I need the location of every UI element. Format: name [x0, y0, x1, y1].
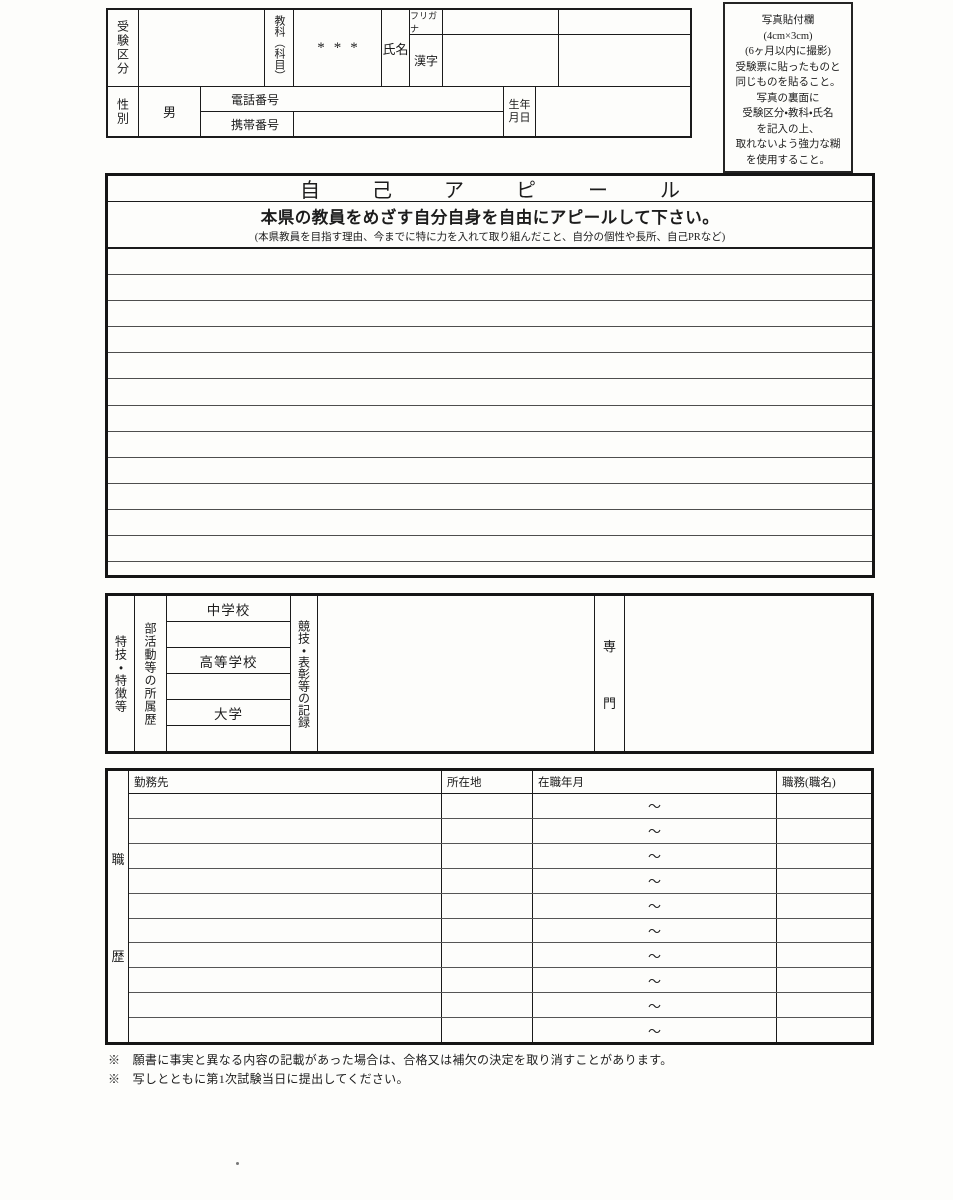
appeal-writing-line — [108, 327, 872, 353]
specialty-field — [625, 596, 871, 751]
work-history-row: ～ — [129, 992, 871, 1017]
work-history-row: ～ — [129, 843, 871, 868]
work-history-rows: ～～～～～～～～～～ — [129, 794, 871, 1042]
kanji-name-row: 漢字 — [410, 35, 690, 86]
work-cell-position — [777, 919, 871, 943]
skills-section-label: 特技・特徴等 — [108, 596, 135, 751]
photo-instruction-line: を記入の上、 — [725, 122, 851, 138]
competition-record-field — [318, 596, 595, 751]
work-history-row: ～ — [129, 1017, 871, 1042]
appeal-writing-line — [108, 249, 872, 275]
self-appeal-subtitle-block: 本県の教員をめざす自分自身を自由にアピールして下さい。 (本県教員を目指す理由、… — [108, 202, 872, 249]
specialty-label-char2: 門 — [603, 693, 616, 712]
footnote-1: ※ 願書に事実と異なる内容の記載があった場合は、合格又は補欠の決定を取り消すこと… — [108, 1051, 673, 1070]
work-history-section-label: 職 歴 — [108, 771, 129, 1042]
school-entry-field — [167, 674, 290, 700]
work-cell-employer — [129, 794, 442, 818]
work-history-label-char1: 職 — [111, 849, 124, 868]
self-appeal-subtitle: 本県の教員をめざす自分自身を自由にアピールして下さい。 — [108, 204, 872, 228]
work-cell-tenure: ～ — [533, 919, 777, 943]
photo-instruction-line: (6ヶ月以内に撮影) — [725, 44, 851, 60]
club-history-label: 部活動等の所属歴 — [135, 596, 167, 751]
kanji-name-field-left — [443, 35, 559, 86]
work-cell-location — [442, 844, 533, 868]
appeal-writing-line — [108, 379, 872, 405]
work-history-header-row: 勤務先 所在地 在職年月 職務(職名) — [129, 771, 871, 794]
work-cell-location — [442, 993, 533, 1017]
work-history-row: ～ — [129, 918, 871, 943]
appeal-writing-line — [108, 458, 872, 484]
photo-attachment-box: 写真貼付欄(4cm×3cm)(6ヶ月以内に撮影)受験票に貼ったものと同じものを貼… — [723, 2, 853, 173]
appeal-writing-line — [108, 353, 872, 379]
self-appeal-title: 自 己 ア ピ ー ル — [108, 176, 872, 202]
phone-field — [293, 87, 503, 111]
work-cell-employer — [129, 869, 442, 893]
work-cell-employer — [129, 943, 442, 967]
applicant-info-row-2: 性別 男 電話番号 携帯番号 生年 月日 — [108, 87, 690, 136]
scan-artifact-dot — [236, 1162, 239, 1165]
work-cell-position — [777, 968, 871, 992]
specialty-label: 専 門 — [595, 596, 625, 751]
column-header-tenure: 在職年月 — [533, 771, 777, 793]
appeal-writing-line — [108, 484, 872, 510]
work-cell-position — [777, 943, 871, 967]
self-appeal-section: 自 己 ア ピ ー ル 本県の教員をめざす自分自身を自由にアピールして下さい。 … — [105, 173, 875, 578]
footnote-2: ※ 写しとともに第1次試験当日に提出してください。 — [108, 1070, 673, 1089]
work-cell-tenure: ～ — [533, 993, 777, 1017]
photo-instruction-line: を使用すること。 — [725, 153, 851, 169]
school-entry-field — [167, 622, 290, 648]
skills-section: 特技・特徴等 部活動等の所属歴 中学校高等学校大学 競技・表彰等の記録 専 門 — [105, 593, 874, 754]
appeal-writing-line — [108, 536, 872, 562]
work-cell-location — [442, 794, 533, 818]
work-cell-tenure: ～ — [533, 968, 777, 992]
work-cell-tenure: ～ — [533, 844, 777, 868]
school-level-label: 高等学校 — [167, 648, 290, 674]
exam-category-label: 受験区分 — [108, 10, 139, 86]
work-cell-location — [442, 1018, 533, 1042]
subject-label: 教科（科目） — [265, 10, 294, 86]
work-cell-employer — [129, 919, 442, 943]
photo-instruction-line: 受験票に貼ったものと — [725, 60, 851, 76]
phone-row: 電話番号 — [201, 87, 503, 112]
appeal-writing-line — [108, 432, 872, 458]
work-cell-location — [442, 869, 533, 893]
work-cell-position — [777, 1018, 871, 1042]
gender-value: 男 — [139, 87, 201, 136]
kanji-name-field-right — [559, 35, 690, 86]
name-label: 氏名 — [382, 10, 410, 86]
work-cell-position — [777, 993, 871, 1017]
furigana-label: フリガナ — [410, 10, 443, 34]
appeal-writing-line — [108, 275, 872, 301]
competition-record-label: 競技・表彰等の記録 — [291, 596, 318, 751]
name-fields-block: フリガナ 漢字 — [410, 10, 690, 86]
birthdate-label-line1: 生年 — [509, 99, 531, 112]
work-cell-position — [777, 869, 871, 893]
work-cell-employer — [129, 993, 442, 1017]
appeal-writing-line — [108, 510, 872, 536]
furigana-field-right — [559, 10, 690, 34]
work-history-row: ～ — [129, 868, 871, 893]
work-cell-position — [777, 794, 871, 818]
phone-label: 電話番号 — [201, 91, 293, 108]
work-cell-employer — [129, 894, 442, 918]
applicant-info-row-1: 受験区分 教科（科目） *** 氏名 フリガナ 漢字 — [108, 10, 690, 87]
work-cell-tenure: ～ — [533, 943, 777, 967]
appeal-writing-line — [108, 301, 872, 327]
work-history-section: 職 歴 勤務先 所在地 在職年月 職務(職名) ～～～～～～～～～～ — [105, 768, 874, 1045]
phone-fields-block: 電話番号 携帯番号 — [201, 87, 504, 136]
work-cell-employer — [129, 968, 442, 992]
work-cell-position — [777, 819, 871, 843]
mobile-label: 携帯番号 — [201, 116, 293, 133]
work-history-row: ～ — [129, 818, 871, 843]
work-cell-position — [777, 844, 871, 868]
photo-instruction-line: 同じものを貼ること。 — [725, 75, 851, 91]
work-history-label-char2: 歴 — [111, 946, 124, 965]
work-history-table: 勤務先 所在地 在職年月 職務(職名) ～～～～～～～～～～ — [129, 771, 871, 1042]
work-cell-employer — [129, 1018, 442, 1042]
photo-instruction-line: 写真貼付欄 — [725, 13, 851, 29]
school-level-column: 中学校高等学校大学 — [167, 596, 291, 751]
self-appeal-note: (本県教員を目指す理由、今までに特に力を入れて取り組んだこと、自分の個性や長所、… — [108, 229, 872, 244]
work-cell-tenure: ～ — [533, 894, 777, 918]
work-cell-tenure: ～ — [533, 819, 777, 843]
column-header-position: 職務(職名) — [777, 771, 871, 793]
applicant-info-table: 受験区分 教科（科目） *** 氏名 フリガナ 漢字 性別 男 — [106, 8, 692, 138]
work-cell-location — [442, 819, 533, 843]
self-appeal-writing-area — [108, 249, 872, 575]
appeal-writing-line — [108, 406, 872, 432]
mobile-field — [293, 112, 503, 136]
birthdate-label: 生年 月日 — [504, 87, 536, 136]
photo-instruction-line: 取れないよう強力な糊 — [725, 137, 851, 153]
work-history-row: ～ — [129, 942, 871, 967]
footnotes: ※ 願書に事実と異なる内容の記載があった場合は、合格又は補欠の決定を取り消すこと… — [108, 1051, 673, 1089]
work-history-row: ～ — [129, 794, 871, 818]
column-header-location: 所在地 — [442, 771, 533, 793]
work-cell-location — [442, 894, 533, 918]
column-header-employer: 勤務先 — [129, 771, 442, 793]
work-cell-tenure: ～ — [533, 1018, 777, 1042]
exam-category-field — [139, 10, 265, 86]
furigana-field-left — [443, 10, 559, 34]
school-entry-field — [167, 726, 290, 751]
application-form-page: 受験区分 教科（科目） *** 氏名 フリガナ 漢字 性別 男 — [0, 0, 953, 1200]
work-history-row: ～ — [129, 967, 871, 992]
school-level-label: 中学校 — [167, 596, 290, 622]
work-cell-location — [442, 943, 533, 967]
photo-instruction-line: (4cm×3cm) — [725, 29, 851, 45]
work-cell-tenure: ～ — [533, 794, 777, 818]
furigana-row: フリガナ — [410, 10, 690, 35]
photo-instruction-line: 写真の裏面に — [725, 91, 851, 107]
work-cell-tenure: ～ — [533, 869, 777, 893]
work-cell-employer — [129, 844, 442, 868]
gender-label: 性別 — [108, 87, 139, 136]
work-cell-position — [777, 894, 871, 918]
school-level-label: 大学 — [167, 700, 290, 726]
work-cell-location — [442, 919, 533, 943]
subject-value: *** — [294, 10, 382, 86]
work-cell-employer — [129, 819, 442, 843]
mobile-row: 携帯番号 — [201, 112, 503, 136]
birthdate-label-line2: 月日 — [509, 112, 531, 125]
work-cell-location — [442, 968, 533, 992]
birthdate-field — [536, 87, 690, 136]
work-history-row: ～ — [129, 893, 871, 918]
kanji-label: 漢字 — [410, 35, 443, 86]
photo-instruction-line: 受験区分・教科・氏名 — [725, 106, 851, 122]
specialty-label-char1: 専 — [603, 636, 616, 655]
